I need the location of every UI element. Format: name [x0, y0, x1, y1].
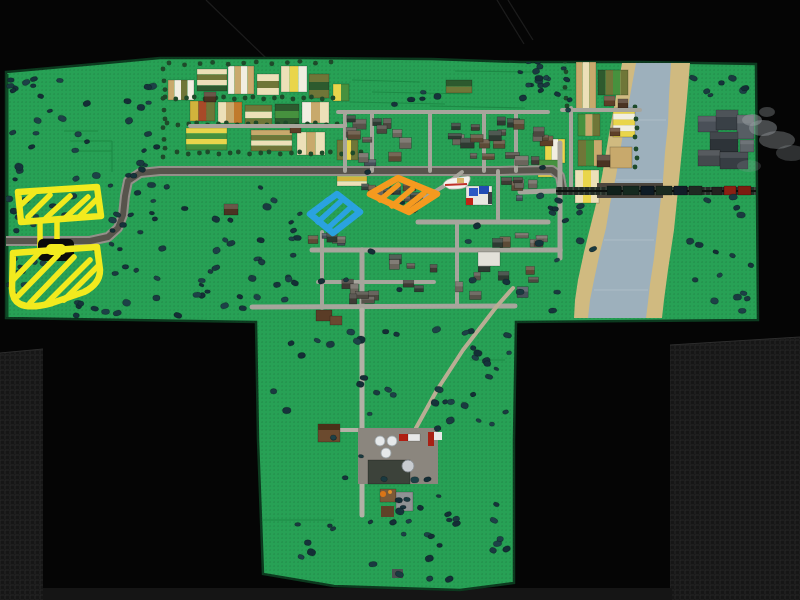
- field-stripe: [309, 82, 329, 90]
- tree: [12, 177, 18, 181]
- hedge-tree: [175, 150, 180, 155]
- town-building-roof: [377, 125, 387, 129]
- town-building-roof: [515, 156, 529, 160]
- north-farm-shed: [316, 310, 332, 321]
- hedge-tree: [250, 95, 255, 100]
- town-building-roof: [498, 271, 509, 275]
- hedge-tree: [163, 87, 168, 92]
- tree: [733, 294, 742, 301]
- town-building-roof: [536, 235, 548, 238]
- field-stripe: [257, 81, 279, 88]
- field-stripe: [275, 104, 299, 111]
- tree: [411, 477, 419, 483]
- tree: [561, 66, 567, 70]
- hedge-tree: [635, 126, 640, 131]
- field-stripe: [446, 87, 472, 94]
- floor-strip: [43, 588, 672, 600]
- hedge-tree: [309, 95, 314, 100]
- field-stripe: [197, 69, 227, 75]
- field-stripe: [341, 84, 349, 101]
- farm-field: [197, 69, 227, 91]
- hedge-tree: [320, 97, 325, 102]
- field-stripe: [351, 140, 358, 160]
- field-stripe: [606, 70, 614, 95]
- tree: [239, 305, 247, 311]
- factory-roof: [710, 132, 738, 139]
- hedge-tree: [175, 123, 180, 128]
- tree: [447, 399, 455, 405]
- tree: [33, 131, 40, 136]
- tree: [78, 301, 84, 306]
- field-stripe: [298, 66, 307, 92]
- tree: [565, 108, 570, 113]
- field-stripe: [613, 70, 621, 95]
- farmhouse-roof: [318, 424, 340, 430]
- farm-field: [333, 84, 349, 101]
- hedge-tree: [236, 150, 241, 155]
- train-car: [738, 186, 751, 195]
- tree: [738, 308, 746, 313]
- field-stripe: [593, 114, 600, 136]
- hedge-tree: [633, 165, 638, 170]
- tree: [554, 290, 561, 295]
- tree: [152, 216, 158, 221]
- smoke-puff: [759, 107, 775, 117]
- hedge-tree: [186, 152, 191, 157]
- hedge-tree: [216, 152, 221, 157]
- hedge-tree: [161, 96, 166, 101]
- town-building-roof: [513, 177, 522, 179]
- train-car: [724, 186, 736, 195]
- tree: [718, 80, 724, 85]
- town-building-roof: [471, 124, 480, 127]
- town-building-roof: [389, 260, 399, 264]
- factory-roof: [698, 116, 718, 122]
- tree: [146, 101, 152, 105]
- town-building-roof: [531, 157, 539, 161]
- dairy-tank: [387, 436, 397, 446]
- fire-station-detail: [488, 192, 492, 204]
- town-building-roof: [400, 138, 412, 143]
- fire-glow: [380, 491, 386, 497]
- town-building-roof: [308, 236, 318, 240]
- field-stripe: [234, 102, 242, 123]
- hedge-tree: [254, 60, 259, 65]
- town-building-roof: [373, 119, 382, 122]
- tree: [736, 212, 745, 219]
- tree: [360, 375, 369, 381]
- farm-field: [309, 74, 329, 98]
- hedge-tree: [161, 125, 166, 130]
- field-stripe: [207, 101, 215, 121]
- hedge-tree: [261, 97, 266, 102]
- plaza-building: [478, 252, 500, 266]
- town-building-roof: [355, 292, 368, 295]
- tree: [13, 228, 19, 233]
- town-building-roof: [528, 180, 537, 184]
- hedge-tree: [328, 150, 333, 155]
- hedge-tree: [563, 85, 568, 90]
- tree: [436, 494, 442, 498]
- hedge-tree: [163, 116, 168, 121]
- tree: [119, 222, 126, 227]
- tree: [150, 199, 156, 203]
- tree: [270, 388, 277, 394]
- field-stripe: [302, 102, 311, 123]
- town-building-roof: [368, 291, 379, 295]
- tree: [537, 64, 544, 70]
- tree: [401, 532, 407, 537]
- hedge-tree: [301, 96, 306, 101]
- hedge-tree: [331, 96, 336, 101]
- town-building-roof: [497, 117, 505, 121]
- farm-shed-roof: [224, 204, 238, 209]
- field-stripe: [257, 74, 279, 81]
- hedge-tree: [280, 95, 285, 100]
- farm-field: [598, 70, 628, 95]
- field-stripe: [576, 62, 583, 109]
- hedge-tree: [205, 150, 210, 155]
- field-stripe: [583, 170, 591, 203]
- field-stripe: [586, 140, 594, 166]
- town-building-roof: [493, 238, 503, 242]
- town-building-roof: [414, 286, 423, 289]
- field-stripe: [320, 102, 329, 123]
- tree: [153, 295, 161, 301]
- hedge-tree: [635, 156, 640, 161]
- factory-roof: [716, 110, 738, 117]
- hedge-tree: [192, 95, 197, 100]
- tree: [419, 96, 425, 101]
- tree: [153, 144, 160, 150]
- field-stripe: [281, 66, 290, 92]
- tree: [304, 540, 311, 546]
- tree: [407, 97, 415, 102]
- hedge-tree: [161, 67, 166, 72]
- field-stripe: [309, 74, 329, 82]
- dairy-tank: [381, 448, 391, 458]
- boat-cabin: [457, 178, 464, 183]
- tree: [295, 522, 301, 526]
- boat-stripe: [445, 184, 467, 185]
- loading-dock: [428, 432, 434, 446]
- hedge-tree: [221, 95, 226, 100]
- town-building-roof: [470, 153, 477, 155]
- field-stripe: [228, 66, 235, 94]
- train-car: [623, 186, 639, 195]
- dairy-tank: [375, 436, 385, 446]
- hedge-tree: [167, 61, 172, 66]
- hedge-tree: [165, 121, 170, 126]
- farm-field: [578, 114, 600, 136]
- tree: [526, 83, 532, 88]
- field-stripe: [306, 132, 315, 155]
- field-stripe: [578, 114, 585, 136]
- lego-town-map-image: [0, 0, 800, 600]
- farm-field: [168, 80, 194, 100]
- field-stripe: [248, 66, 255, 94]
- train-car: [656, 186, 672, 195]
- tree: [30, 83, 36, 88]
- train-car: [689, 186, 702, 195]
- tree: [535, 75, 543, 81]
- tree: [390, 392, 397, 397]
- fire-station-roof: [479, 186, 489, 194]
- truck-trailer: [408, 434, 420, 441]
- hedge-tree: [226, 62, 231, 67]
- town-building-roof: [470, 291, 482, 295]
- town-building-roof: [430, 264, 437, 268]
- town-building-roof: [501, 178, 512, 181]
- town-building-roof: [505, 152, 519, 155]
- field-stripe: [245, 105, 272, 112]
- farm-field: [281, 66, 307, 92]
- tree: [403, 497, 410, 502]
- field-stripe: [337, 177, 367, 182]
- tree: [391, 102, 397, 107]
- south-shed: [381, 506, 394, 517]
- field-stripe: [235, 66, 242, 94]
- field-stripe: [583, 62, 590, 109]
- hedge-tree: [289, 151, 294, 156]
- hedge-tree: [258, 151, 263, 156]
- field-stripe: [598, 70, 606, 95]
- tree: [147, 182, 156, 188]
- town-building-roof: [383, 118, 391, 123]
- hedge-tree: [278, 152, 283, 157]
- field-stripe: [197, 86, 227, 92]
- farm-field: [337, 140, 358, 160]
- tree: [396, 287, 402, 292]
- tree: [282, 407, 291, 414]
- hedge-tree: [162, 108, 167, 113]
- tree: [137, 104, 145, 111]
- tree: [117, 247, 122, 251]
- hedge-tree: [633, 135, 638, 140]
- town-building-roof: [514, 120, 525, 124]
- north-farm-shed: [330, 316, 342, 325]
- field-stripe: [337, 140, 344, 160]
- tree: [130, 173, 137, 178]
- hedge-tree: [634, 117, 639, 122]
- hedge-tree: [634, 147, 639, 152]
- field-stripe: [218, 102, 226, 123]
- town-building-roof: [474, 272, 481, 276]
- farm-field: [576, 62, 596, 109]
- field-stripe: [290, 66, 299, 92]
- tree: [72, 148, 79, 153]
- tree: [181, 206, 188, 211]
- town-building-roof: [389, 152, 401, 156]
- tree: [433, 93, 441, 100]
- farm-shed-roof: [610, 128, 620, 132]
- farm-shed-roof: [604, 96, 615, 101]
- town-building-roof: [362, 137, 371, 139]
- field-stripe: [186, 128, 227, 134]
- hedge-tree: [267, 150, 272, 155]
- fire-glow: [388, 490, 392, 494]
- hedge-tree: [162, 137, 167, 142]
- hedge-tree: [182, 62, 187, 67]
- loading-dock: [434, 432, 442, 440]
- hedge-tree: [313, 61, 318, 66]
- town-building-roof: [528, 277, 538, 279]
- field-stripe: [186, 134, 227, 140]
- tree: [290, 253, 297, 258]
- field-stripe: [245, 112, 272, 119]
- silo: [402, 460, 414, 472]
- field-stripe: [446, 80, 472, 87]
- tree: [330, 435, 337, 441]
- field-stripe: [186, 139, 227, 145]
- town-building-roof: [359, 153, 369, 157]
- hedge-tree: [197, 151, 202, 156]
- tree: [516, 289, 524, 295]
- town-building-roof: [393, 129, 402, 133]
- tree: [506, 351, 511, 355]
- field-stripe: [251, 135, 292, 140]
- baseplate-dark-left: [0, 349, 43, 600]
- train-car: [674, 186, 687, 195]
- field-stripe: [585, 114, 592, 136]
- farm-shed-roof: [204, 92, 216, 97]
- tree: [7, 78, 14, 83]
- farm-field: [302, 102, 329, 123]
- field-stripe: [311, 102, 320, 123]
- tree: [122, 264, 129, 269]
- tree: [137, 230, 143, 234]
- field-stripe: [613, 120, 635, 126]
- hedge-tree: [350, 151, 355, 156]
- tree: [56, 78, 63, 83]
- hedge-tree: [247, 152, 252, 157]
- hedge-tree: [198, 61, 203, 66]
- train-car: [712, 187, 722, 195]
- farm-field: [190, 101, 215, 121]
- hedge-tree: [232, 97, 237, 102]
- town-building-roof: [407, 263, 415, 265]
- field-stripe: [197, 75, 227, 81]
- town-building-roof: [455, 282, 463, 287]
- farm-shed-roof: [597, 155, 610, 160]
- field-stripe: [198, 101, 206, 121]
- town-building-roof: [471, 135, 484, 138]
- hedge-tree: [291, 97, 296, 102]
- hedge-tree: [243, 96, 248, 101]
- tree: [469, 277, 477, 284]
- hedge-tree: [285, 60, 290, 65]
- town-building-roof: [516, 195, 522, 197]
- field-stripe: [589, 62, 596, 109]
- field-stripe: [251, 141, 292, 146]
- hedge-tree: [308, 152, 313, 157]
- farm-field: [575, 170, 599, 203]
- hedge-tree: [320, 151, 325, 156]
- town-building-roof: [349, 294, 356, 299]
- fire-station-door: [466, 198, 473, 205]
- truck-cab: [399, 434, 408, 441]
- hedge-tree: [162, 78, 167, 83]
- smoke-puff: [737, 160, 761, 172]
- hedge-tree: [161, 155, 166, 160]
- farm-shed-roof: [618, 99, 628, 103]
- field-stripe: [257, 88, 279, 95]
- farm-field: [257, 74, 279, 95]
- tree: [204, 290, 210, 294]
- field-stripe: [275, 111, 299, 118]
- town-building-roof: [533, 127, 544, 131]
- field-stripe: [168, 80, 175, 100]
- tree: [382, 329, 389, 334]
- tree: [123, 98, 131, 104]
- tree: [367, 412, 372, 416]
- hedge-tree: [184, 96, 189, 101]
- field-stripe: [575, 170, 583, 203]
- farm-field: [186, 128, 227, 150]
- town-building-roof: [389, 255, 401, 259]
- hedge-tree: [241, 61, 246, 66]
- tree: [446, 518, 452, 522]
- town-building-roof: [482, 154, 494, 157]
- farm-field: [446, 80, 472, 93]
- tree: [193, 292, 201, 298]
- field-stripe: [621, 70, 629, 95]
- hedge-tree: [272, 96, 277, 101]
- farm-field: [218, 102, 242, 123]
- hedge-tree: [297, 150, 302, 155]
- hedge-tree: [210, 60, 215, 65]
- train-car: [641, 186, 654, 195]
- town-building-roof: [347, 116, 355, 119]
- tree: [74, 131, 81, 137]
- field-stripe: [610, 147, 632, 168]
- fire-station-roof: [469, 188, 478, 196]
- town-building-roof: [350, 284, 358, 289]
- town-building-roof: [448, 133, 461, 136]
- factory-roof: [698, 150, 720, 156]
- field-stripe: [241, 66, 248, 94]
- hedge-tree: [173, 97, 178, 102]
- town-building-roof: [362, 184, 369, 187]
- hedge-tree: [228, 151, 233, 156]
- farm-field: [610, 147, 632, 168]
- tree: [136, 160, 145, 167]
- field-stripe: [251, 130, 292, 135]
- tree: [483, 360, 491, 367]
- town-building-roof: [348, 131, 361, 135]
- train-car: [607, 186, 621, 195]
- farm-field: [251, 130, 292, 151]
- field-stripe: [190, 101, 198, 121]
- town-building-roof: [489, 131, 502, 136]
- farm-field: [228, 66, 254, 94]
- town-building-roof: [526, 266, 535, 270]
- tree: [535, 240, 544, 247]
- field-stripe: [613, 114, 635, 120]
- field-stripe: [197, 80, 227, 86]
- field-stripe: [226, 102, 234, 123]
- tree: [342, 475, 348, 480]
- map-scene: [0, 0, 800, 600]
- field-stripe: [578, 140, 586, 166]
- hedge-tree: [329, 60, 334, 65]
- tree: [101, 309, 110, 315]
- field-stripe: [186, 145, 227, 151]
- factory-roof: [740, 140, 754, 144]
- town-building-roof: [451, 123, 460, 126]
- hedge-tree: [163, 146, 168, 151]
- town-building-roof: [403, 280, 414, 283]
